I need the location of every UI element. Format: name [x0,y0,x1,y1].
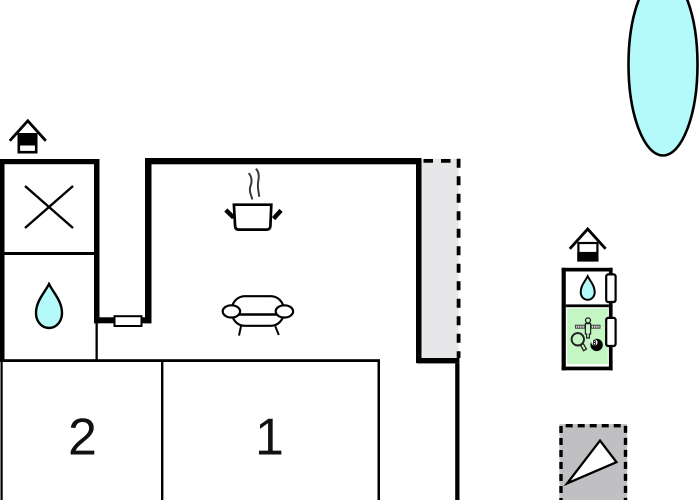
svg-text:1: 1 [255,409,284,467]
svg-text:2: 2 [68,409,97,467]
